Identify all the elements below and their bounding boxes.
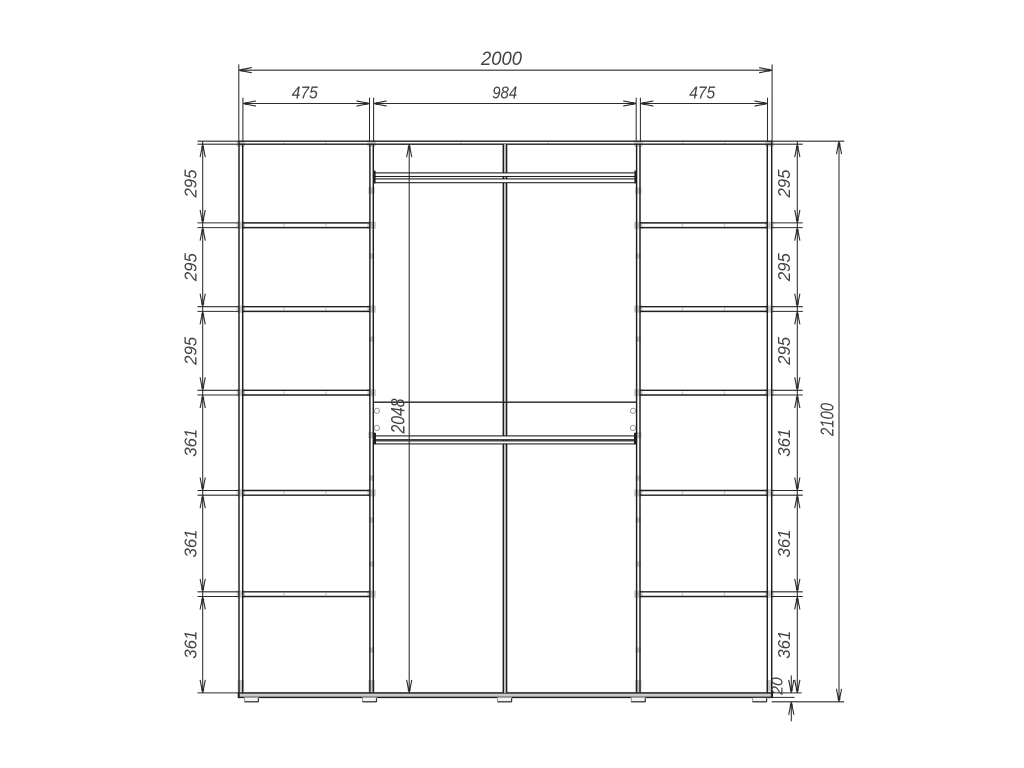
- svg-text:984: 984: [492, 82, 517, 102]
- svg-text:361: 361: [774, 530, 794, 558]
- svg-text:2048: 2048: [388, 398, 409, 434]
- svg-text:361: 361: [181, 429, 201, 457]
- svg-text:295: 295: [774, 169, 794, 198]
- svg-text:2100: 2100: [818, 403, 838, 437]
- svg-text:361: 361: [181, 530, 201, 558]
- svg-text:295: 295: [774, 336, 794, 365]
- svg-text:295: 295: [181, 336, 201, 365]
- svg-text:20: 20: [770, 677, 787, 696]
- svg-text:361: 361: [181, 631, 201, 659]
- svg-text:295: 295: [774, 253, 794, 282]
- svg-text:361: 361: [774, 429, 794, 457]
- svg-text:295: 295: [181, 253, 201, 282]
- svg-text:361: 361: [774, 631, 794, 659]
- svg-text:475: 475: [292, 82, 318, 102]
- svg-text:2000: 2000: [480, 49, 522, 70]
- svg-text:475: 475: [689, 82, 715, 102]
- svg-text:295: 295: [181, 169, 201, 198]
